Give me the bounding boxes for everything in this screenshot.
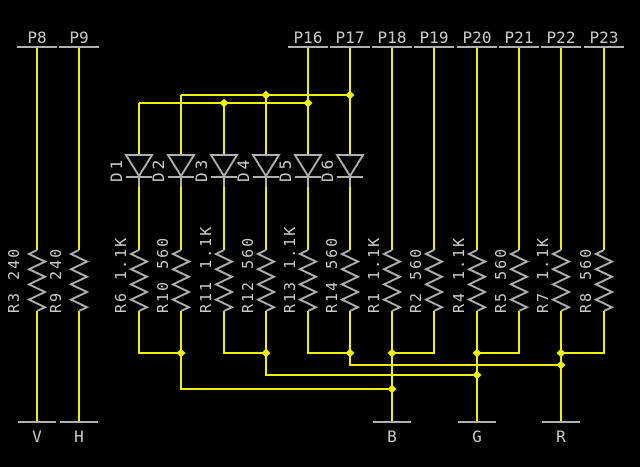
pin-label-p8: P8 (27, 28, 46, 47)
resistor-symbol-r12 (258, 250, 274, 311)
resistor-label-r9: R9 240 (47, 247, 65, 313)
diode-symbol-d6 (337, 155, 363, 187)
resistor-symbol-r14 (342, 250, 358, 311)
net-g-wire (224, 311, 519, 422)
resistor-label-r8: R8 560 (577, 247, 595, 313)
pin-label-p23: P23 (590, 28, 619, 47)
pin-label-p22: P22 (547, 28, 576, 47)
resistor-label-r4: R4 1.1K (450, 236, 468, 313)
diode-label-d3: D3 (192, 157, 211, 182)
net-b-wire (139, 311, 434, 422)
diode-label-d5: D5 (276, 157, 295, 182)
resistor-label-r5: R5 560 (492, 247, 510, 313)
pin-labels: P8 P9 P16 P17 P18 P19 P20 P21 P22 P23 (27, 28, 618, 47)
net-p17-wire (181, 47, 350, 155)
ground-label-h: H (74, 427, 84, 446)
resistor-symbol-r8 (596, 250, 612, 311)
pin-label-p16: P16 (294, 28, 323, 47)
pin-label-p21: P21 (505, 28, 534, 47)
pin-label-p9: P9 (69, 28, 88, 47)
pin-drop-wires (392, 47, 604, 250)
resistor-label-r1: R1 1.1K (365, 236, 383, 313)
resistor-symbol-r6 (131, 250, 147, 311)
ground-label-b: B (387, 427, 397, 446)
resistor-symbol-r9 (71, 250, 87, 311)
resistor-symbol-r2 (426, 250, 442, 311)
resistor-label-r10: R10 560 (154, 236, 172, 313)
resistor-symbol-r11 (216, 250, 232, 311)
diode-symbol-d2 (168, 155, 194, 187)
resistor-symbol-r7 (553, 250, 569, 311)
net-wires (37, 47, 604, 422)
diode-labels: D1 D2 D3 D4 D5 D6 (107, 157, 337, 182)
resistor-label-r2: R2 560 (407, 247, 425, 313)
pin-label-p18: P18 (378, 28, 407, 47)
resistor-label-r14: R14 560 (323, 236, 341, 313)
resistor-symbol-r3 (29, 250, 45, 311)
resistor-symbol-r4 (469, 250, 485, 311)
ground-labels: V H B G R (32, 427, 566, 446)
schematic-canvas: P8 P9 P16 P17 P18 P19 P20 P21 P22 P23 D1… (0, 0, 640, 467)
resistor-label-r12: R12 560 (239, 236, 257, 313)
pin-label-p19: P19 (420, 28, 449, 47)
resistor-label-r3: R3 240 (5, 247, 23, 313)
resistor-label-r7: R7 1.1K (534, 236, 552, 313)
resistor-symbol-r1 (384, 250, 400, 311)
resistor-label-r6: R6 1.1K (112, 236, 130, 313)
resistor-label-r11: R11 1.1K (197, 225, 215, 313)
diode-label-d6: D6 (318, 157, 337, 182)
ground-label-g: G (472, 427, 482, 446)
pin-label-p20: P20 (463, 28, 492, 47)
ground-label-r: R (556, 427, 566, 446)
resistor-label-r13: R13 1.1K (281, 225, 299, 313)
resistor-symbol-r10 (173, 250, 189, 311)
diode-label-d2: D2 (149, 157, 168, 182)
diode-label-d1: D1 (107, 157, 126, 182)
pin-label-p17: P17 (336, 28, 365, 47)
diode-label-d4: D4 (234, 157, 253, 182)
ground-label-v: V (32, 427, 42, 446)
resistor-symbol-r13 (300, 250, 316, 311)
schematic: P8 P9 P16 P17 P18 P19 P20 P21 P22 P23 D1… (0, 0, 640, 467)
resistor-symbol-r5 (511, 250, 527, 311)
